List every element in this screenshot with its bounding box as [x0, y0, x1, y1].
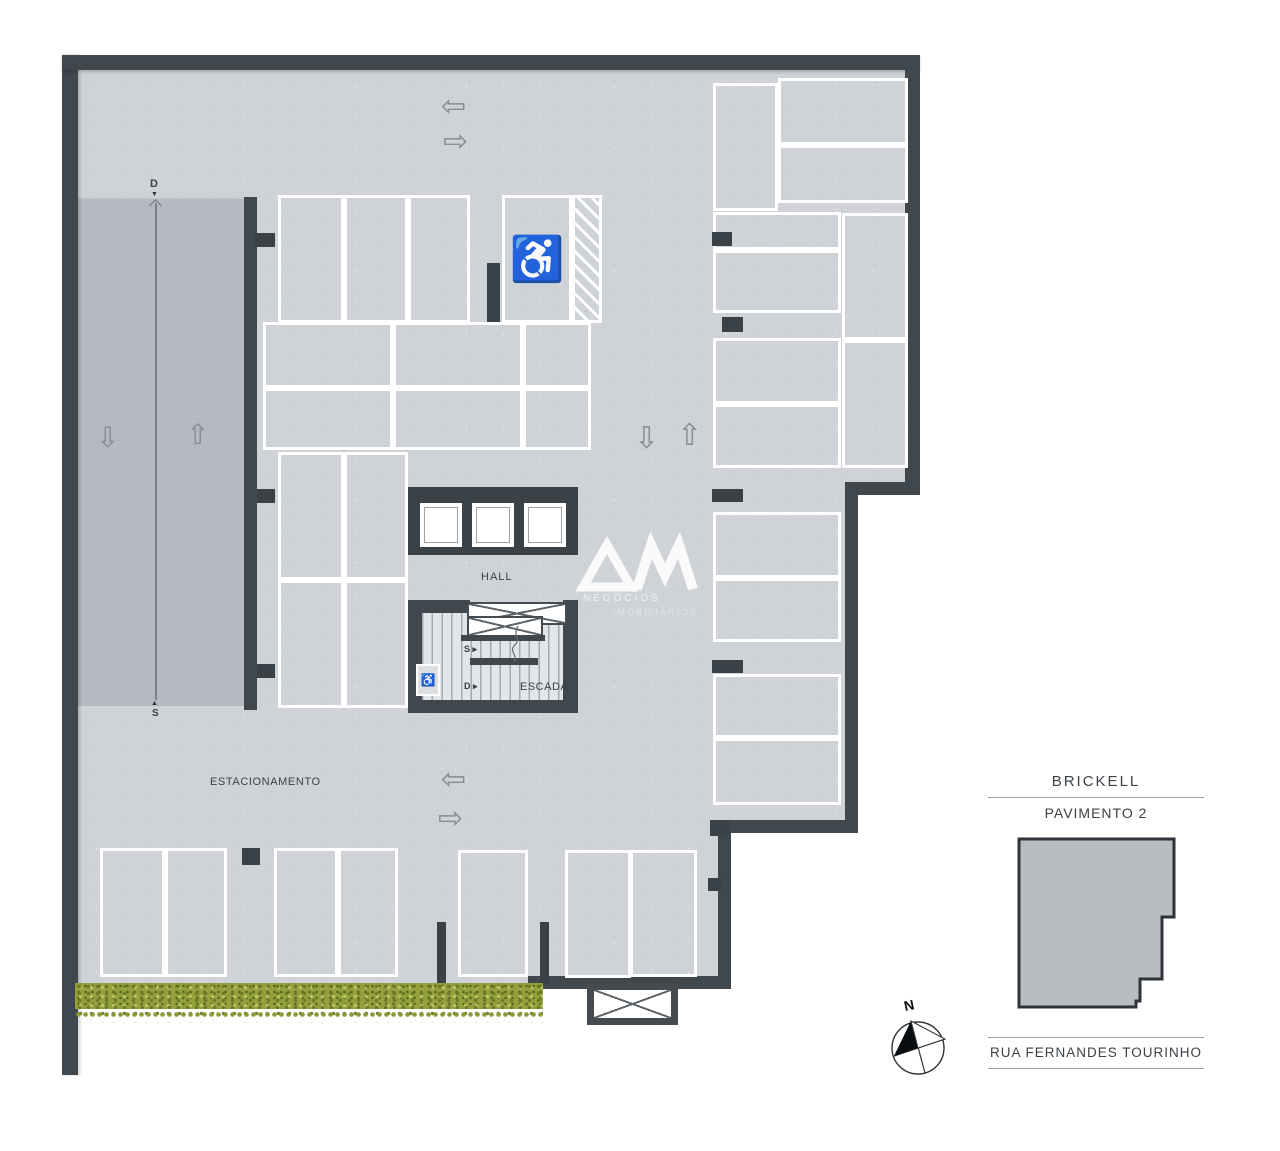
traffic-direction-arrow: ⇧	[186, 421, 209, 449]
accessible-parking-spot: ♿	[502, 195, 572, 323]
parking-spot	[713, 250, 841, 313]
hall-label: HALL	[481, 571, 513, 583]
structural-pillar	[708, 878, 722, 891]
traffic-direction-arrow: ⇧	[677, 421, 702, 451]
structural-pillar	[242, 848, 260, 865]
parking-spot	[393, 322, 523, 388]
wall-step-2	[723, 820, 858, 833]
street-label: RUA FERNANDES TOURINHO	[978, 1045, 1214, 1060]
grass-fringe	[75, 1008, 543, 1023]
parking-spot	[263, 388, 393, 450]
elevator-block	[408, 487, 578, 555]
elevator-car-outline	[476, 507, 510, 543]
parking-spot	[713, 338, 841, 404]
parking-spot	[278, 452, 344, 580]
parking-spot	[278, 580, 344, 708]
floor-plan-page: D ▼ ▲ S ♿ ⇦⇨⇩⇧⇦⇨⇩⇧ HALL S ▸ D ▸ ESCADA ♿	[0, 0, 1280, 1151]
ramp-exit-triangle: ▲	[151, 700, 158, 707]
wall-top	[62, 55, 920, 70]
parking-spot	[408, 195, 470, 323]
parking-spot	[523, 388, 591, 450]
wheelchair-icon: ♿	[421, 673, 436, 687]
structural-pillar	[710, 820, 730, 836]
parking-spot	[713, 83, 778, 211]
wall-right-lower	[718, 820, 731, 989]
wall-left	[62, 55, 78, 1075]
shaft-x-box	[587, 983, 678, 1025]
grass-hedge	[75, 983, 543, 1009]
parking-spot	[458, 850, 528, 977]
logo-line1: NEGÓCIOS	[583, 593, 661, 604]
traffic-direction-arrow: ⇩	[96, 424, 119, 452]
parking-spot	[713, 674, 841, 738]
elevator-cab	[417, 500, 465, 550]
stair-down-marker: D ▸	[464, 681, 478, 692]
ramp-entry-label: D	[150, 178, 158, 190]
parking-spot	[344, 452, 408, 580]
parking-spot	[344, 195, 408, 323]
stair-wall-left	[408, 600, 422, 713]
parking-spot	[278, 195, 344, 323]
parking-spot	[393, 388, 523, 450]
stair-wall-bottom	[408, 700, 578, 713]
structural-pillar	[257, 664, 275, 678]
floor-title: PAVIMENTO 2	[988, 805, 1204, 821]
parking-spot	[100, 848, 165, 977]
stair-block: S ▸ D ▸ ESCADA ♿	[408, 600, 578, 713]
am-logo-icon	[575, 533, 705, 593]
parking-spot	[263, 322, 393, 388]
traffic-direction-arrow: ⇦	[441, 92, 466, 122]
parking-spot	[565, 850, 631, 978]
structural-pillar	[257, 489, 275, 503]
parking-spot	[842, 340, 908, 468]
ramp-center-line	[155, 203, 157, 700]
panel-divider	[988, 1037, 1204, 1038]
elevator-cab	[469, 500, 517, 550]
ramp-entry-triangle: ▼	[151, 191, 158, 198]
stair-wall-top	[408, 600, 470, 613]
structural-pillar	[255, 233, 275, 247]
structural-pillar	[722, 317, 743, 332]
logo-line2: IMOBILIÁRIOS	[613, 607, 698, 617]
hatched-no-parking-zone	[572, 195, 602, 323]
brand-watermark: NEGÓCIOS IMOBILIÁRIOS	[575, 533, 705, 625]
estacionamento-label: ESTACIONAMENTO	[210, 776, 321, 788]
parking-spot	[842, 213, 908, 340]
elevator-car-outline	[424, 507, 458, 543]
parking-spot	[338, 848, 398, 977]
parking-spot	[630, 850, 697, 977]
ramp-divider-wall	[244, 197, 257, 710]
parking-spot	[713, 578, 841, 642]
parking-spot	[778, 78, 908, 145]
structural-pillar	[540, 922, 549, 984]
stair-up-marker: S ▸	[464, 644, 477, 655]
ramp-exit-label: S	[152, 708, 159, 719]
parking-spot	[165, 848, 227, 977]
panel-divider	[988, 1068, 1204, 1069]
structural-pillar	[712, 489, 743, 502]
traffic-direction-arrow: ⇨	[438, 804, 463, 834]
structural-pillar	[712, 660, 743, 673]
parking-spot	[713, 512, 841, 578]
mini-floor-outline	[1016, 836, 1178, 1011]
elevator-car-outline	[528, 507, 562, 543]
building-title: BRICKELL	[988, 773, 1204, 790]
stair-landing-edge	[461, 635, 545, 641]
parking-spot	[713, 738, 841, 805]
panel-divider	[988, 797, 1204, 798]
wall-right-middle	[845, 482, 858, 833]
compass-north-label: N	[902, 996, 915, 1014]
traffic-direction-arrow: ⇨	[443, 127, 468, 157]
parking-spot	[778, 145, 908, 203]
traffic-direction-arrow: ⇦	[441, 765, 466, 795]
parking-spot	[344, 580, 408, 708]
parking-spot	[713, 212, 841, 250]
elevator-cab	[521, 500, 569, 550]
parking-spot	[523, 322, 591, 388]
stair-accessible-box: ♿	[416, 664, 440, 696]
parking-spot	[274, 848, 338, 977]
escada-label: ESCADA	[520, 681, 568, 693]
parking-spot	[713, 404, 841, 468]
structural-pillar	[487, 263, 500, 322]
traffic-direction-arrow: ⇩	[634, 424, 659, 454]
structural-pillar	[712, 232, 732, 246]
wheelchair-icon: ♿	[505, 233, 569, 285]
compass-rose: N	[870, 995, 970, 1090]
stair-flow-squiggle	[504, 624, 528, 664]
